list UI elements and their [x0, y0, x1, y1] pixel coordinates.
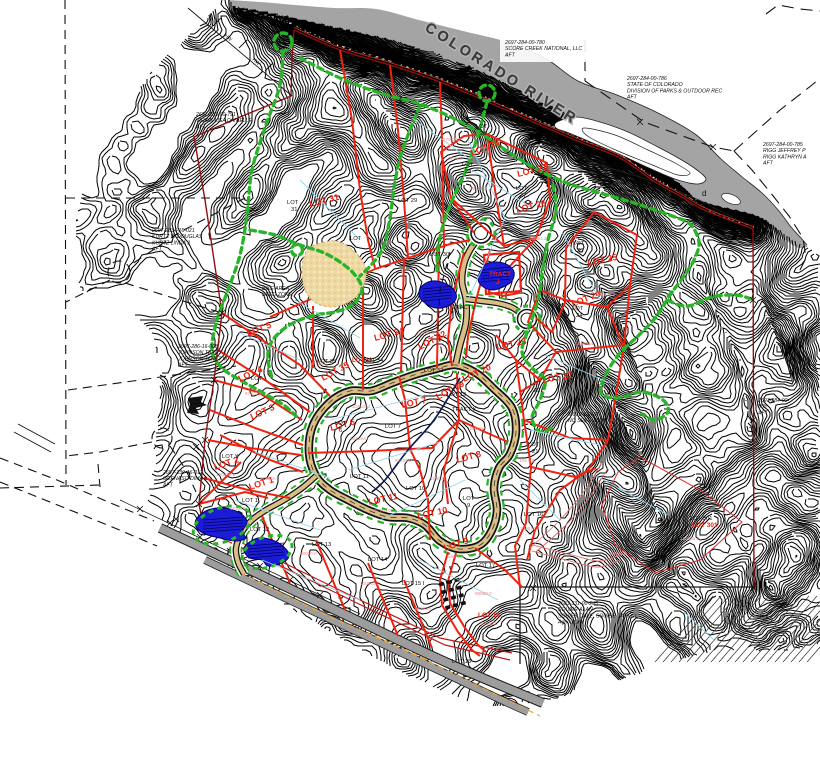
- svg-text:LOT 16: LOT 16: [478, 612, 500, 619]
- svg-text:97872.2: 97872.2: [245, 391, 262, 396]
- svg-text:LOT: LOT: [530, 381, 542, 387]
- svg-text:98853.0: 98853.0: [475, 591, 492, 596]
- svg-text:28: 28: [465, 169, 471, 175]
- svg-text:25: 25: [577, 248, 583, 254]
- svg-text:97162.0: 97162.0: [481, 621, 498, 626]
- svg-text:TRACT K: TRACT K: [452, 407, 477, 413]
- svg-text:10419A2: 10419A2: [350, 436, 369, 441]
- svg-text:21: 21: [532, 449, 538, 455]
- svg-text:LOT 11: LOT 11: [350, 474, 369, 480]
- svg-text:98876.0: 98876.0: [610, 551, 627, 556]
- svg-text:LOT 301: LOT 301: [690, 516, 712, 522]
- svg-text:LOT: LOT: [476, 124, 488, 130]
- svg-text:93445A4: 93445A4: [575, 341, 594, 346]
- svg-text:LOT: LOT: [516, 186, 528, 192]
- svg-text:10410A2: 10410A2: [352, 404, 371, 409]
- svg-text:LOT 34: LOT 34: [364, 358, 384, 364]
- svg-text:LOT: LOT: [700, 484, 712, 490]
- svg-text:130496.2: 130496.2: [216, 472, 236, 477]
- svg-text:TRACT J: TRACT J: [452, 305, 476, 311]
- svg-text:98931.2: 98931.2: [470, 186, 487, 191]
- svg-text:LOT: LOT: [764, 312, 776, 318]
- svg-text:98486.2: 98486.2: [418, 330, 435, 335]
- svg-text:LOT 15 I: LOT 15 I: [402, 581, 425, 587]
- svg-text:94974.5: 94974.5: [447, 554, 464, 559]
- svg-text:28: 28: [480, 131, 486, 137]
- svg-text:97963: 97963: [450, 156, 463, 161]
- svg-text:LOT 301: LOT 301: [692, 522, 718, 529]
- svg-text:LOT 17: LOT 17: [476, 563, 495, 569]
- svg-text:LOT 13: LOT 13: [312, 542, 331, 548]
- svg-text:LOT: LOT: [572, 306, 584, 312]
- svg-text:94992A: 94992A: [415, 606, 432, 611]
- svg-text:LOT 16: LOT 16: [524, 512, 543, 518]
- svg-text:LOT 30: LOT 30: [430, 252, 449, 258]
- svg-text:99768.0: 99768.0: [395, 458, 412, 463]
- svg-text:LOT 19: LOT 19: [447, 392, 466, 398]
- svg-text:100943.2: 100943.2: [360, 581, 380, 586]
- svg-text:LOT 29: LOT 29: [398, 198, 417, 204]
- svg-text:31: 31: [291, 207, 297, 213]
- svg-text:LOT: LOT: [335, 421, 347, 427]
- svg-text:LOT 7: LOT 7: [385, 424, 401, 430]
- svg-text:LOT: LOT: [463, 496, 475, 502]
- svg-text:139855.2: 139855.2: [680, 536, 700, 541]
- svg-text:103319.2: 103319.2: [230, 506, 250, 511]
- svg-text:109534.0: 109534.0: [596, 292, 616, 297]
- svg-text:100678.2: 100678.2: [520, 526, 540, 531]
- svg-text:LOT: LOT: [287, 200, 299, 206]
- svg-text:24: 24: [576, 313, 583, 319]
- svg-text:LOT 10: LOT 10: [406, 486, 425, 492]
- svg-text:24: 24: [768, 319, 775, 325]
- svg-text:102.8.8: 102.8.8: [519, 458, 535, 463]
- svg-text:97804A: 97804A: [260, 476, 277, 481]
- svg-text:LOT 1: LOT 1: [242, 498, 258, 504]
- svg-text:27: 27: [520, 193, 526, 199]
- svg-text:LOT 32: LOT 32: [424, 368, 443, 374]
- svg-text:98722.2: 98722.2: [310, 361, 327, 366]
- svg-text:98090.0: 98090.0: [300, 551, 317, 556]
- svg-text:98929A: 98929A: [470, 426, 487, 431]
- svg-text:LOT 18: LOT 18: [452, 659, 471, 665]
- svg-text:6: 6: [339, 428, 342, 434]
- svg-text:LOT Y: LOT Y: [222, 454, 239, 460]
- svg-text:LOT: LOT: [462, 162, 474, 168]
- svg-text:LOT: LOT: [573, 241, 585, 247]
- svg-text:BIKE AREASEED ZONE: BIKE AREASEED ZONE: [262, 286, 293, 298]
- svg-text:LOT: LOT: [251, 376, 263, 382]
- svg-text:J: J: [496, 279, 500, 286]
- svg-text:97963L2: 97963L2: [443, 137, 461, 142]
- svg-text:22: 22: [534, 388, 540, 394]
- svg-text:TRACT: TRACT: [489, 271, 511, 278]
- svg-text:98884.2: 98884.2: [530, 236, 547, 241]
- svg-text:LOT: LOT: [528, 442, 540, 448]
- svg-text:LOT: LOT: [350, 236, 362, 242]
- svg-text:LOT 12: LOT 12: [250, 527, 269, 533]
- svg-text:100032: 100032: [430, 476, 446, 481]
- svg-text:9: 9: [467, 503, 470, 509]
- svg-text:97745.0: 97745.0: [374, 508, 391, 513]
- svg-text:d: d: [702, 189, 706, 198]
- svg-text:LOT 14: LOT 14: [368, 557, 388, 563]
